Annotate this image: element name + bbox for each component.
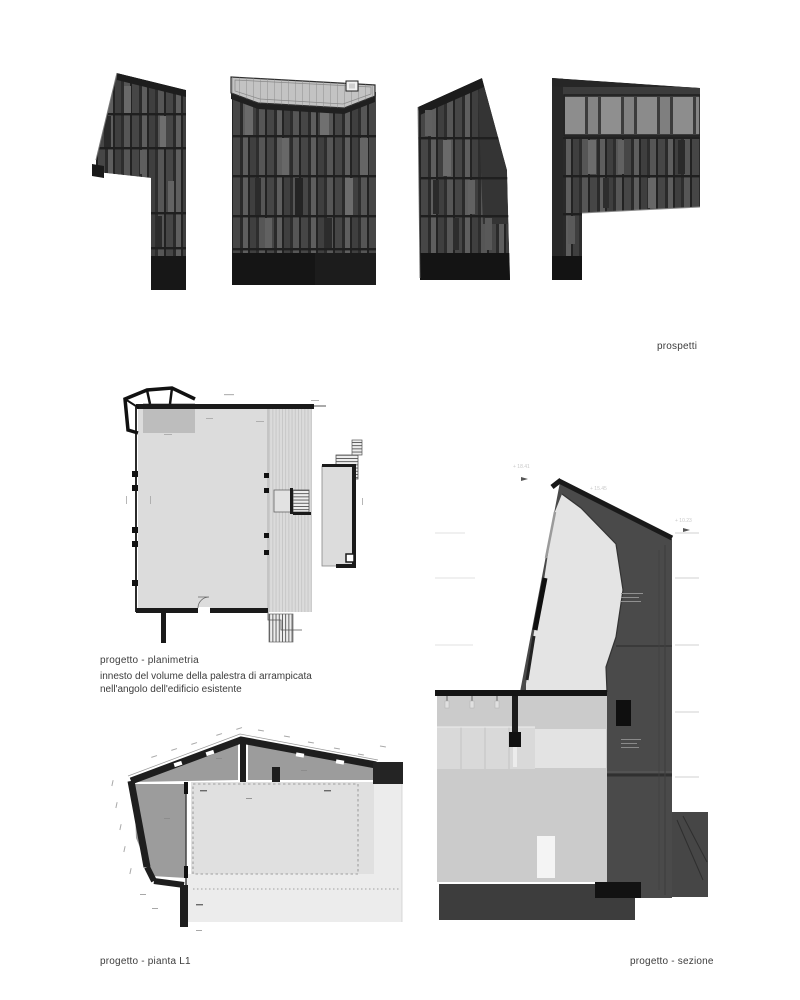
side-face [552,78,563,280]
column [512,696,518,734]
elevation-4-drawing [548,74,706,284]
presentation-board: prospetti [0,0,800,1000]
base-plinth [419,253,510,280]
level-arrow [521,477,528,481]
door-opening [537,836,555,878]
prospetti-label: prospetti [657,341,697,352]
pianta-l1-drawing [96,718,426,942]
level-arrow [683,528,690,532]
planimetria-title: progetto - planimetria [100,655,199,666]
side-face [478,78,508,224]
base-foot [92,164,104,178]
planimetria-caption-line1: innesto del volume della palestra di arr… [100,670,312,683]
interior [437,696,607,882]
elevation-3-drawing [413,74,513,284]
base-plinth [552,256,582,280]
base-plinth [151,256,186,290]
stair-mid [293,490,309,512]
floor-main [191,782,374,874]
elevation-3-facade [418,78,510,280]
elevation-2-facade [232,92,376,285]
elevation-2-drawing [225,72,380,287]
planimetria-caption-line2: nell'angolo dell'edificio esistente [100,683,242,696]
sezione-label: progetto - sezione [630,956,714,967]
level-label-1: + 18.41 [513,464,530,470]
sezione-drawing: + 18.41 + 15.45 + 10.23 [435,450,747,924]
planimetria-drawing [106,378,370,656]
level-label-2: + 15.45 [590,486,607,492]
pianta-l1-label: progetto - pianta L1 [100,956,191,967]
door-opening [198,607,210,614]
right-annex [322,464,356,568]
base-strip [595,882,641,898]
roof-bar [435,690,607,696]
upper-panel-band [564,95,700,136]
wall-header [616,700,631,726]
elevation-1-drawing [90,66,190,294]
level-label-3: + 10.23 [675,518,692,524]
elevation-4-facade [552,78,700,280]
